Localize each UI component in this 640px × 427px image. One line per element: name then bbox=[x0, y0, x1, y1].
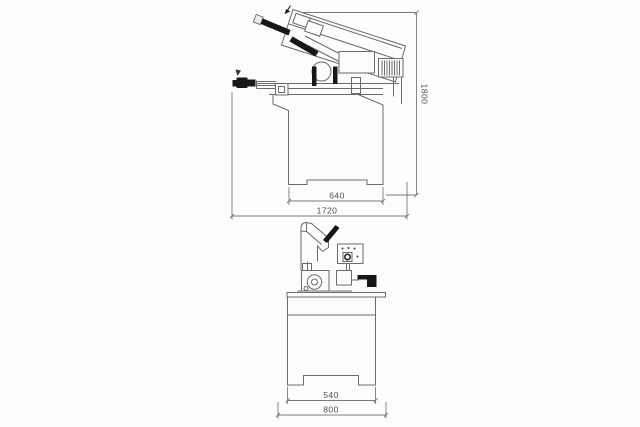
panel-button bbox=[354, 248, 356, 250]
dimension-label-overall-length: 1720 bbox=[317, 206, 338, 216]
cabinet-base-side bbox=[273, 95, 383, 185]
saw-bow-front bbox=[301, 223, 340, 262]
vise-crank-knob bbox=[233, 70, 256, 89]
vise-jaw bbox=[312, 67, 317, 87]
pivot-bracket bbox=[352, 78, 361, 94]
small-arrow-icon bbox=[236, 70, 242, 77]
dimension-label-overall-width: 800 bbox=[323, 405, 339, 415]
dimension-1720: 1720 bbox=[230, 92, 409, 220]
front-view: 540 800 bbox=[276, 223, 388, 419]
panel-button bbox=[357, 256, 359, 258]
dimension-800: 800 bbox=[276, 402, 388, 419]
panel-button bbox=[342, 248, 344, 250]
scanned-technical-drawing: 1800 bbox=[0, 0, 640, 427]
motor bbox=[379, 59, 404, 78]
panel-button bbox=[348, 247, 350, 249]
cabinet-base-front bbox=[288, 315, 376, 385]
bow-lift-handle bbox=[323, 225, 340, 243]
dimension-label-overall-height: 1800 bbox=[420, 84, 430, 105]
bow-grip-handle bbox=[259, 18, 291, 36]
wheel-housing bbox=[339, 52, 375, 74]
vise-jaw bbox=[333, 67, 338, 85]
blade-direction-arrow-icon bbox=[285, 6, 291, 15]
dimension-label-base-width-side: 640 bbox=[329, 191, 345, 201]
dimension-540: 540 bbox=[286, 387, 378, 404]
work-table bbox=[257, 81, 400, 96]
dimension-label-base-width-front: 540 bbox=[323, 390, 339, 400]
front-table bbox=[287, 293, 386, 316]
saw-bow bbox=[253, 6, 405, 94]
vise-handle-front bbox=[358, 275, 377, 287]
dimension-640: 640 bbox=[287, 187, 385, 205]
side-view: 1800 bbox=[230, 6, 430, 220]
bandsaw-drawing: 1800 bbox=[0, 0, 640, 427]
